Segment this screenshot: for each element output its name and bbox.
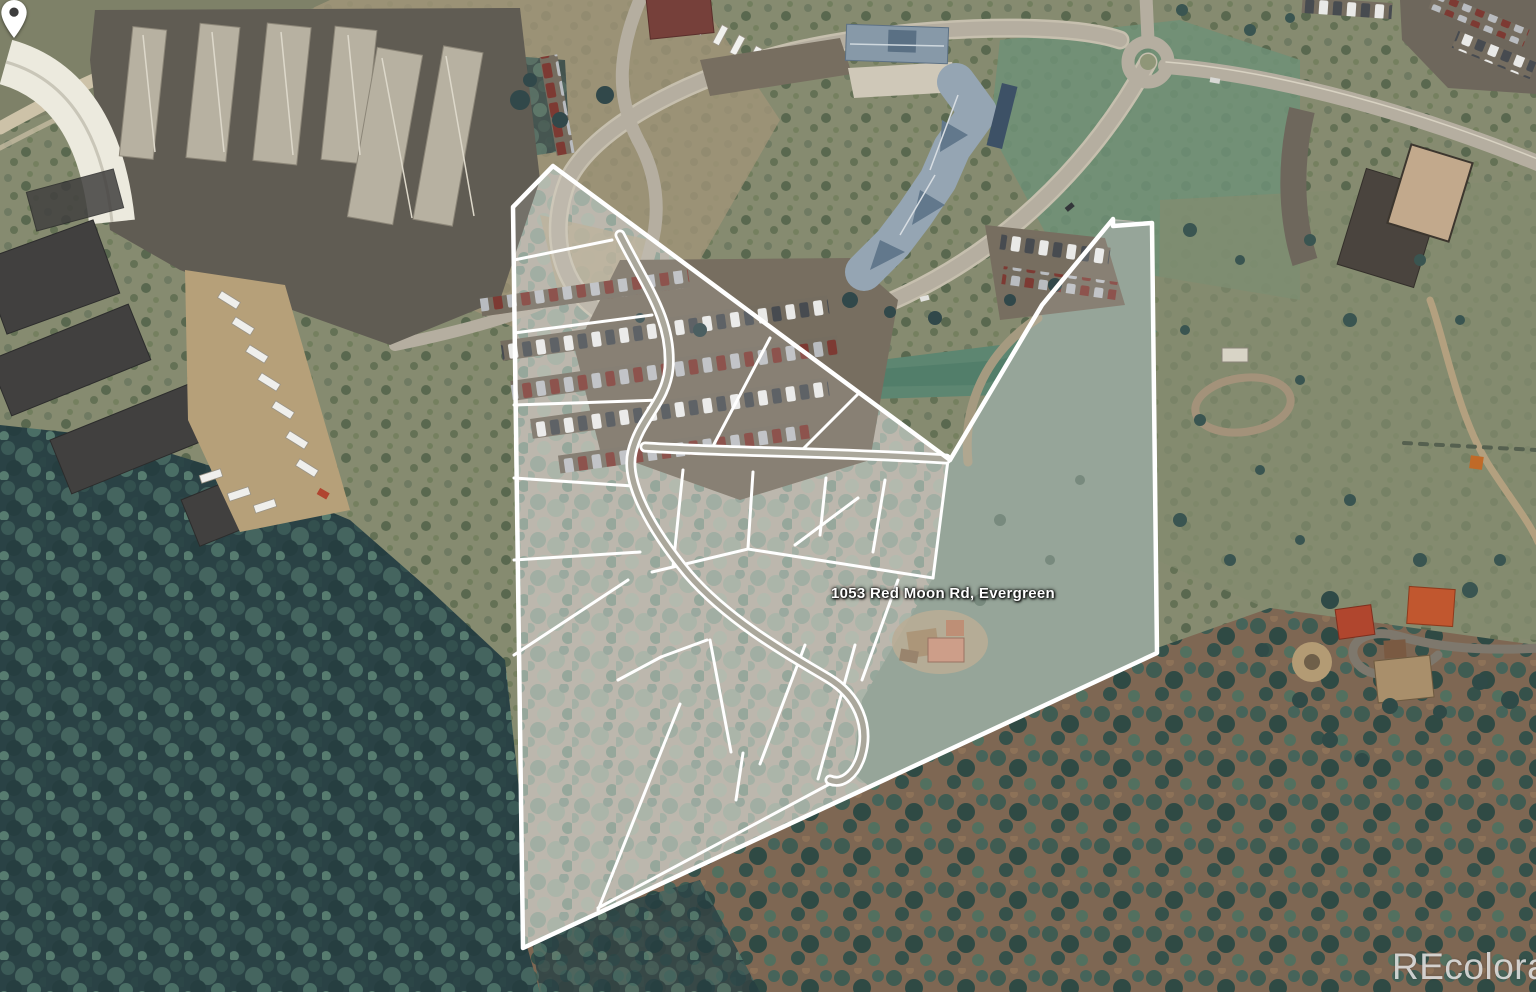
red-roof-house-2 bbox=[1407, 586, 1455, 626]
map-pin-icon bbox=[0, 0, 28, 38]
listing-photo: 1053 Red Moon Rd, Evergreen REcolorado bbox=[0, 0, 1536, 992]
tan-roof-house bbox=[1374, 655, 1434, 703]
address-label: 1053 Red Moon Rd, Evergreen bbox=[763, 585, 1123, 602]
shed-orange bbox=[1469, 455, 1484, 470]
shed-white bbox=[1222, 348, 1248, 362]
red-roof-house-1 bbox=[1335, 605, 1375, 640]
aerial-photo bbox=[0, 0, 1536, 992]
watermark: REcolorado bbox=[1392, 946, 1536, 988]
red-roof-building-top bbox=[646, 0, 714, 39]
road-north-stub bbox=[1146, 0, 1148, 40]
